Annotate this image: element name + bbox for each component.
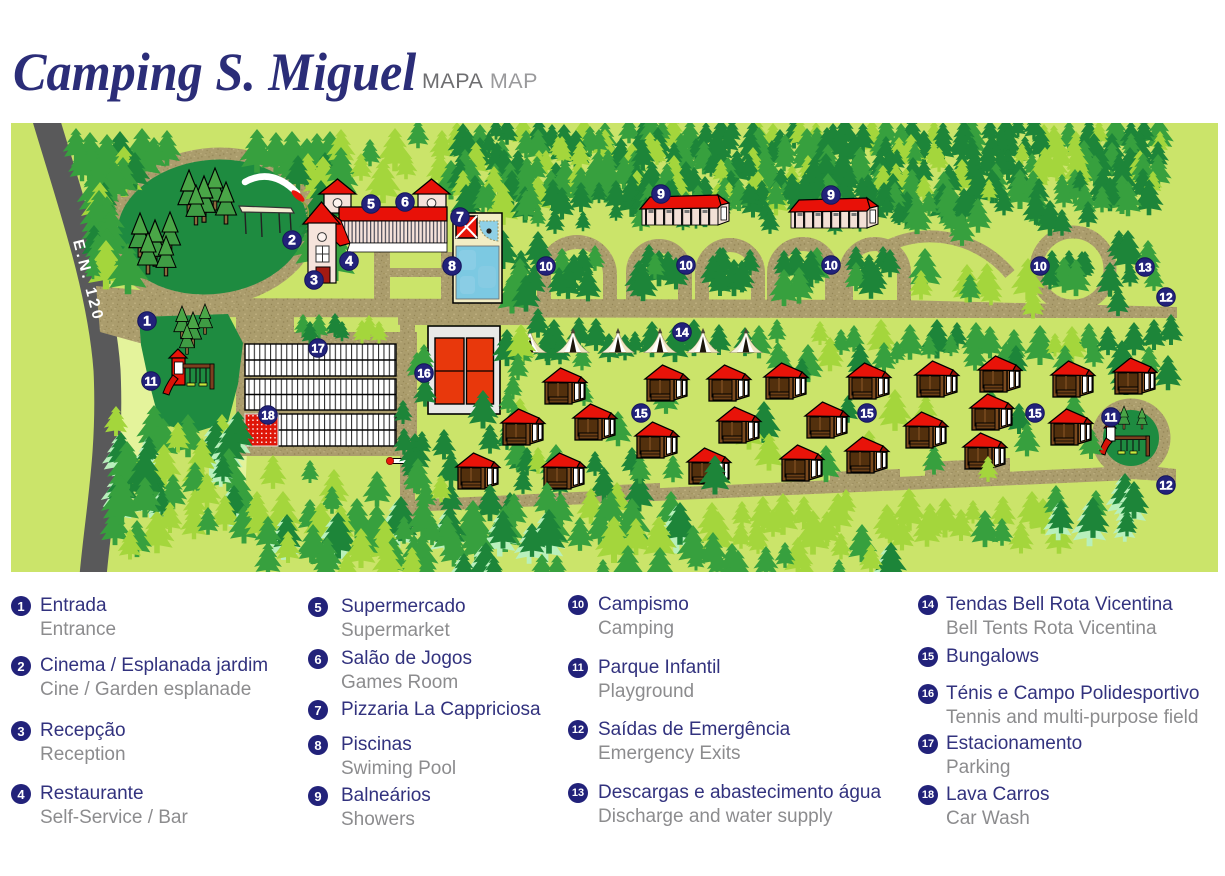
- svg-text:11: 11: [1105, 411, 1118, 425]
- svg-text:18: 18: [261, 409, 275, 423]
- svg-text:9: 9: [827, 187, 835, 203]
- svg-text:2: 2: [288, 232, 296, 248]
- svg-text:15: 15: [860, 407, 874, 421]
- svg-text:7: 7: [456, 209, 464, 225]
- svg-text:17: 17: [311, 342, 325, 356]
- svg-text:12: 12: [1159, 291, 1173, 305]
- svg-text:10: 10: [824, 259, 838, 273]
- svg-text:10: 10: [1033, 260, 1047, 274]
- svg-text:15: 15: [1028, 407, 1042, 421]
- svg-text:4: 4: [345, 253, 353, 269]
- svg-text:11: 11: [145, 375, 158, 389]
- svg-text:10: 10: [539, 260, 553, 274]
- svg-text:9: 9: [657, 186, 665, 202]
- svg-text:16: 16: [417, 367, 431, 381]
- svg-text:12: 12: [1159, 479, 1173, 493]
- svg-text:6: 6: [401, 194, 409, 210]
- svg-text:14: 14: [675, 326, 689, 340]
- svg-text:13: 13: [1138, 261, 1152, 275]
- svg-text:1: 1: [143, 313, 151, 329]
- svg-text:15: 15: [634, 407, 648, 421]
- svg-text:3: 3: [310, 272, 318, 288]
- svg-text:10: 10: [679, 259, 693, 273]
- svg-text:8: 8: [448, 258, 456, 274]
- svg-text:5: 5: [367, 196, 375, 212]
